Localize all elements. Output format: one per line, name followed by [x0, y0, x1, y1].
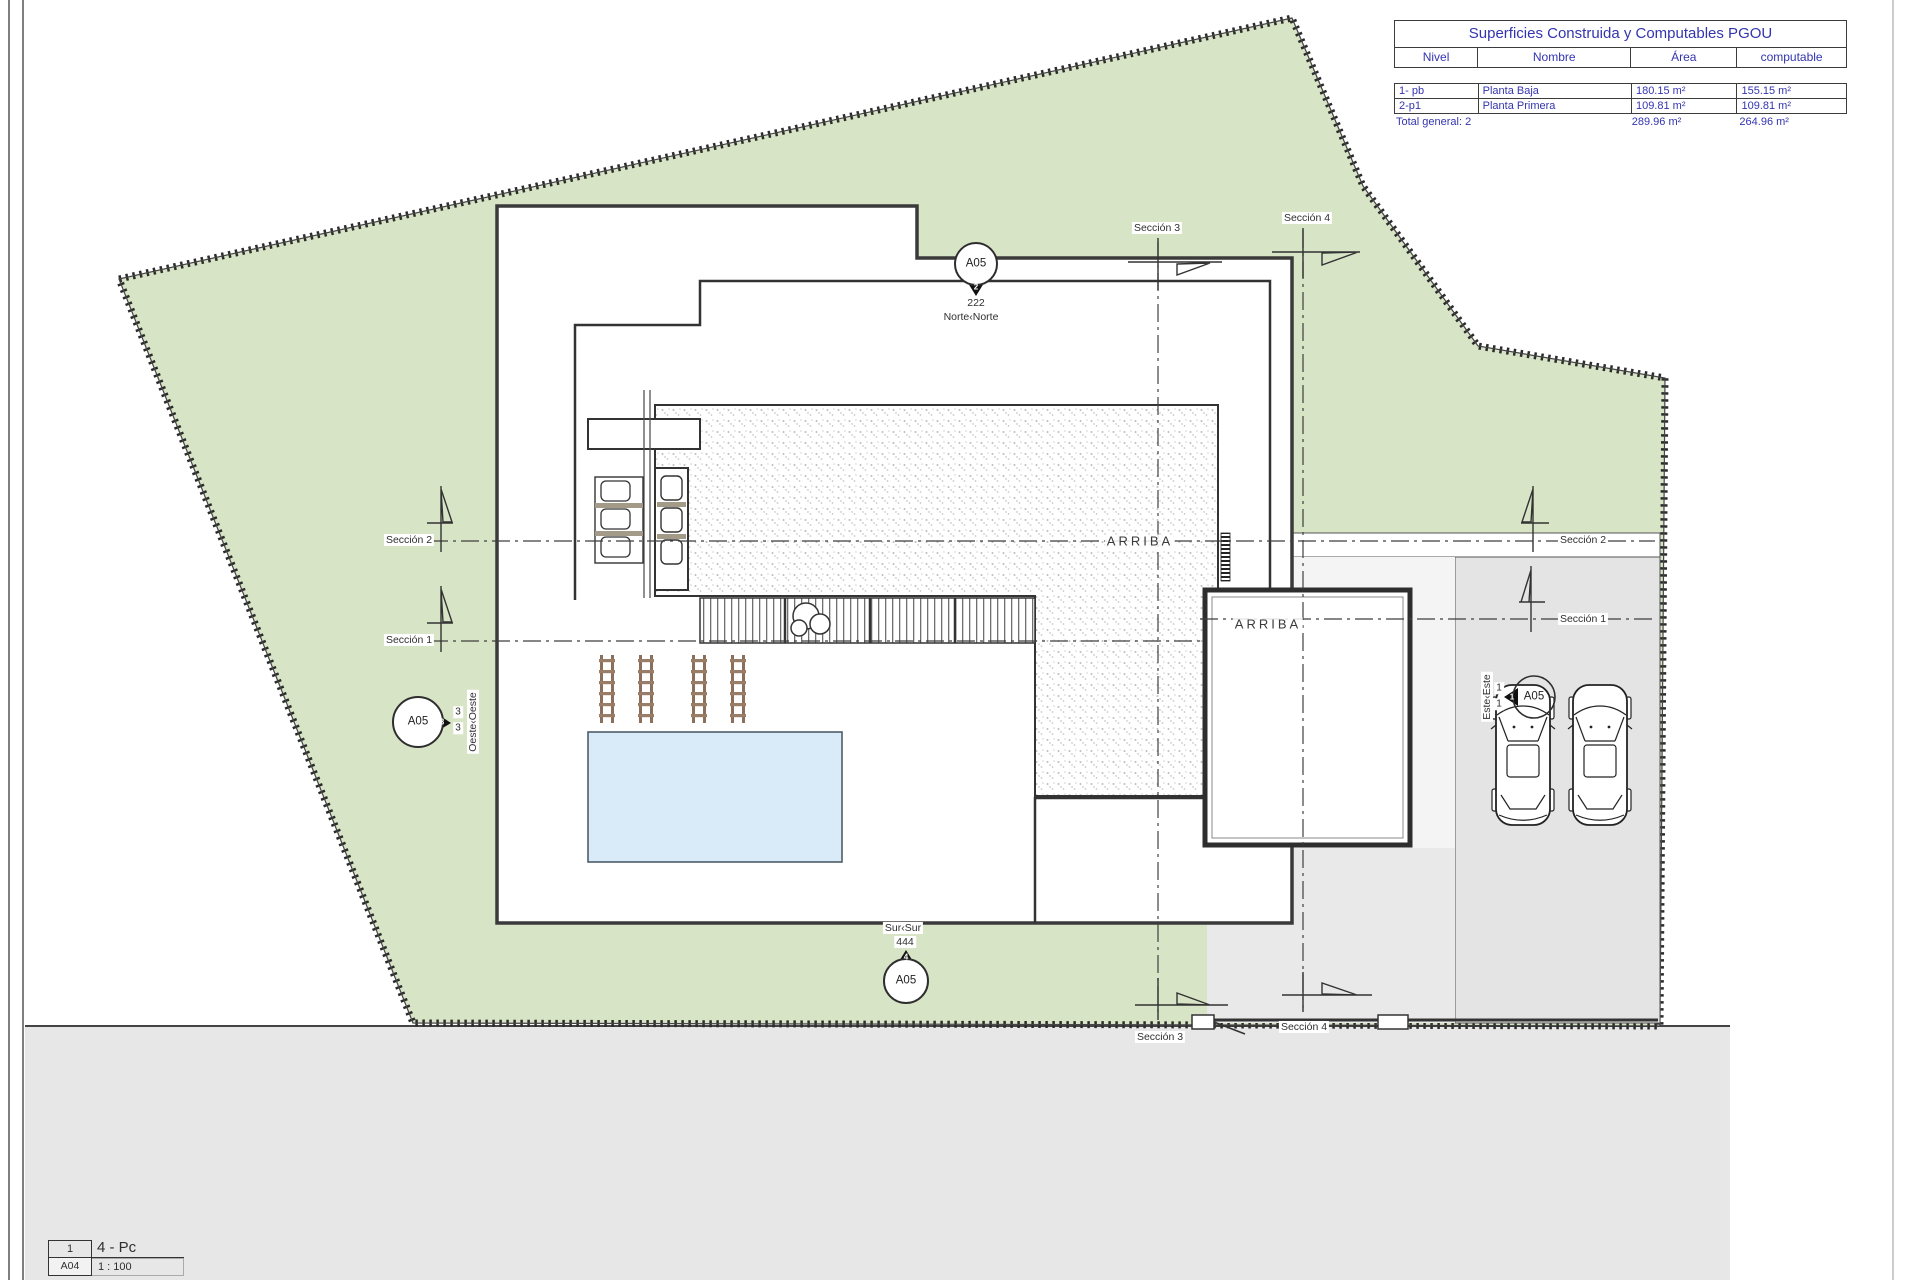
- sheet-ref: A04: [48, 1258, 92, 1276]
- west-callout-num-2: 3: [453, 722, 463, 734]
- north-callout-badge: 2: [974, 283, 978, 292]
- total-area: 289.96 m²: [1628, 115, 1736, 130]
- west-callout-num-1: 3: [453, 706, 463, 718]
- arriba-label-roof: ARRIBA: [1105, 535, 1175, 550]
- south-elevation-label: Sur‹Sur: [883, 922, 923, 934]
- section-2-label-left: Sección 2: [384, 534, 434, 546]
- section-4-label-bottom: Sección 4: [1279, 1021, 1329, 1033]
- wall-hatch: [1221, 533, 1230, 581]
- cell-area: 109.81 m²: [1631, 99, 1737, 113]
- west-callout-badge: 3: [440, 718, 444, 727]
- south-callout-sheet: A05: [894, 974, 918, 987]
- table-row: 2-p1 Planta Primera 109.81 m² 109.81 m²: [1395, 98, 1846, 113]
- cell-computable: 155.15 m²: [1736, 84, 1846, 98]
- south-callout-badge: 4: [904, 953, 908, 962]
- pergola-louvers: [700, 598, 1035, 643]
- window-block: [595, 477, 643, 563]
- west-callout-sheet: A05: [406, 715, 430, 728]
- col-header-nombre: Nombre: [1477, 48, 1630, 67]
- view-name: 4 - Pc: [92, 1240, 184, 1258]
- stair-column: [655, 468, 688, 590]
- section-3-label-top: Sección 3: [1132, 222, 1182, 234]
- areas-table-header: Nivel Nombre Área computable: [1394, 48, 1847, 68]
- view-title-block: 1 4 - Pc A04 1 : 100: [48, 1240, 184, 1276]
- east-elevation-label: Este‹Este: [1481, 672, 1493, 722]
- east-callout-sheet: A05: [1522, 690, 1546, 703]
- south-callout-dim: 444: [894, 936, 916, 948]
- section-2-label-right: Sección 2: [1558, 534, 1608, 546]
- north-callout-dim: 222: [965, 297, 987, 309]
- table-row: 1- pb Planta Baja 180.15 m² 155.15 m²: [1395, 84, 1846, 98]
- col-header-computable: computable: [1736, 48, 1846, 67]
- east-callout-num-1: 1: [1494, 682, 1504, 694]
- view-number: 1: [48, 1240, 92, 1258]
- col-header-nivel: Nivel: [1395, 48, 1477, 67]
- section-3-label-bottom: Sección 3: [1135, 1031, 1185, 1043]
- arriba-label-garage: ARRIBA: [1233, 618, 1303, 633]
- east-callout-badge: 1: [1510, 693, 1514, 702]
- cell-computable: 109.81 m²: [1736, 99, 1846, 113]
- cell-nombre: Planta Primera: [1478, 99, 1631, 113]
- street-area: [25, 1026, 1730, 1280]
- cell-nivel: 2-p1: [1395, 99, 1478, 113]
- section-1-label-right: Sección 1: [1558, 613, 1608, 625]
- cell-nivel: 1- pb: [1395, 84, 1478, 98]
- section-1-label-left: Sección 1: [384, 634, 434, 646]
- section-4-label-top: Sección 4: [1282, 212, 1332, 224]
- areas-summary-table: Superficies Construida y Computables PGO…: [1394, 20, 1847, 130]
- col-header-area: Área: [1630, 48, 1736, 67]
- cell-area: 180.15 m²: [1631, 84, 1737, 98]
- east-callout-num-2: 1: [1494, 698, 1504, 710]
- view-scale: 1 : 100: [92, 1258, 184, 1276]
- north-callout-sheet: A05: [964, 257, 988, 270]
- total-computable: 264.96 m²: [1735, 115, 1847, 130]
- site-plan-drawing: [0, 0, 1920, 1280]
- drawing-sheet: Sección 3 Sección 4 Sección 2 Sección 1 …: [0, 0, 1920, 1280]
- table-total-row: Total general: 2 289.96 m² 264.96 m²: [1394, 115, 1847, 130]
- cell-nombre: Planta Baja: [1478, 84, 1631, 98]
- north-elevation-label: Norte‹Norte: [942, 311, 1001, 323]
- pool: [588, 732, 842, 862]
- areas-table-title: Superficies Construida y Computables PGO…: [1394, 20, 1847, 48]
- total-label: Total general: 2: [1394, 115, 1628, 130]
- west-elevation-label: Oeste‹Oeste: [467, 690, 479, 754]
